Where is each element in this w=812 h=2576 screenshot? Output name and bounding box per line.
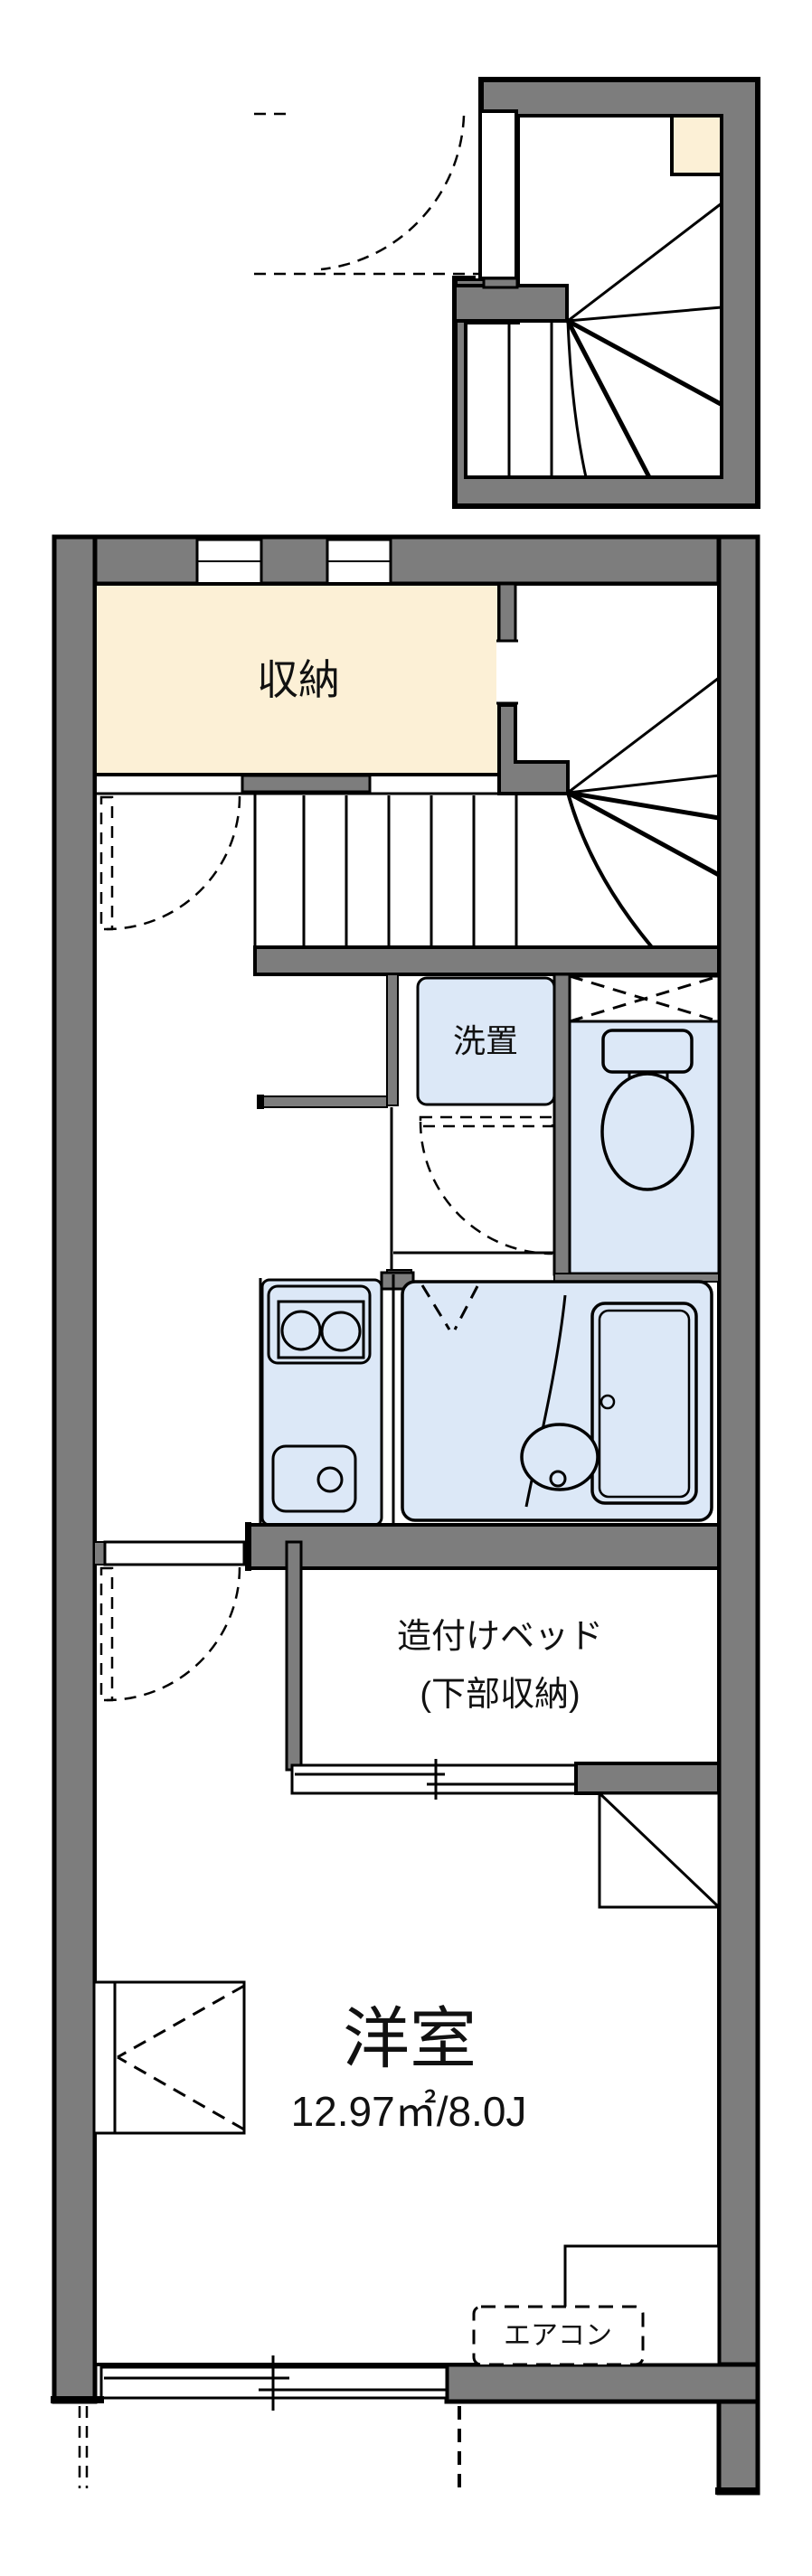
left-wall-bottom-cap (51, 2396, 104, 2403)
upper-storage-corner (672, 116, 722, 174)
left-wall (54, 537, 95, 2402)
top-window-right (327, 540, 391, 584)
top-wall (54, 537, 758, 584)
upper-stair-newel-tab (484, 278, 517, 287)
toilet-room (554, 974, 719, 1282)
western-room-size: 12.97㎡/8.0J (291, 2090, 527, 2133)
corner-shaft-box (600, 1793, 719, 1907)
storage-wall-opening (496, 641, 518, 703)
upper-door-leaf (480, 111, 516, 278)
kitchen-bottom-wall (249, 1525, 719, 1568)
bathtub-icon (592, 1303, 696, 1503)
western-room-label: 洋室 (343, 2004, 477, 2074)
upper-floor-plan (254, 80, 758, 506)
bed-sliding-door (292, 1759, 576, 1800)
bed-left-wall (287, 1542, 301, 1770)
floor-plan: 収納 洗置 造付けベッド (下部収納) 洋室 12.97㎡/8.0J エアコン (0, 0, 812, 2576)
main-floor-plan (51, 537, 760, 2495)
bed-label-line1: 造付けベッド (397, 1620, 603, 1656)
side-window-box (94, 1982, 244, 2133)
top-window-left (197, 540, 261, 584)
kitchen-bottom-wall-cap (245, 1522, 251, 1571)
washer-left-wall (387, 974, 398, 1105)
bath-drain-icon (522, 1424, 598, 1490)
floor-plan-drawing (0, 0, 812, 2576)
bed-label-line2: (下部収納) (420, 1678, 580, 1714)
storage-bottom-wall-segment (242, 776, 370, 792)
right-wall-bottom-cap (715, 2487, 760, 2495)
toilet-icon (602, 1030, 693, 1189)
toilet-left-wall (554, 974, 570, 1274)
bathroom (382, 1273, 712, 1525)
hall-stub-cap (257, 1095, 264, 1109)
storage-room-label: 収納 (257, 658, 340, 701)
aircon-label: エアコン (504, 2321, 612, 2350)
bottom-right-wall (447, 2364, 758, 2402)
kitchen-unit (260, 1278, 382, 1525)
hall-stub-wall (262, 1096, 387, 1107)
right-wall (719, 537, 758, 2493)
stairs-bottom-wall (255, 947, 719, 974)
washer-label: 洗置 (453, 1024, 518, 1058)
boundary-dashed-lines (80, 2406, 459, 2488)
upper-stair-newel-wall (455, 286, 567, 321)
bed-bottom-wall (576, 1763, 719, 1793)
room-doorway (94, 1542, 244, 1565)
upper-door-swing-arc (321, 116, 464, 269)
